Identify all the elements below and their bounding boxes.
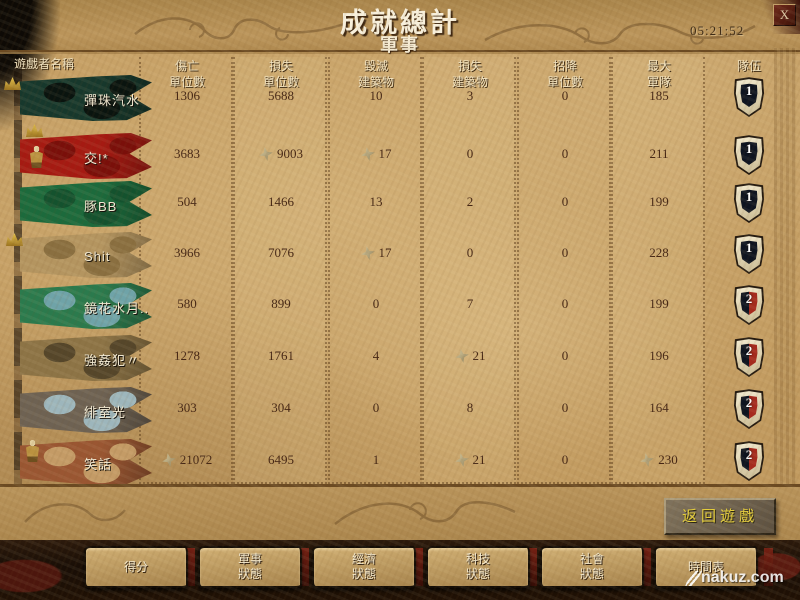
team-shield: 2 bbox=[733, 336, 765, 377]
player-row: 鏡花水月.. 580 899 0 7 0 199 2 bbox=[0, 281, 800, 333]
best-value-star-icon bbox=[359, 245, 376, 262]
stat-cell: 8 bbox=[423, 399, 517, 417]
stat-cell: 3 bbox=[423, 87, 517, 105]
scroll-ornament bbox=[330, 490, 520, 538]
stat-cell: 5688 bbox=[234, 87, 328, 105]
team-number: 2 bbox=[733, 343, 765, 359]
player-name: 彈珠汽水 bbox=[84, 73, 140, 125]
watermark-logo-icon bbox=[685, 571, 701, 586]
stat-cell: 199 bbox=[612, 193, 706, 211]
player-row: 笑話 21072 6495 1 21 0 230 2 bbox=[0, 437, 800, 489]
watermark: nakuz.com bbox=[688, 569, 784, 587]
player-column-header: 遊戲者名稱 bbox=[14, 55, 74, 72]
stat-cell: 13 bbox=[329, 193, 423, 211]
team-number: 1 bbox=[733, 189, 765, 205]
stat-cell: 17 bbox=[329, 244, 423, 262]
best-value-star-icon bbox=[359, 146, 376, 163]
team-number: 2 bbox=[733, 395, 765, 411]
stat-cell: 1 bbox=[329, 451, 423, 469]
stat-cell: 303 bbox=[140, 399, 234, 417]
stat-cell: 10 bbox=[329, 87, 423, 105]
stat-cell: 1306 bbox=[140, 87, 234, 105]
player-name: 交!* bbox=[84, 131, 109, 183]
team-number: 2 bbox=[733, 291, 765, 307]
stat-cell: 3966 bbox=[140, 244, 234, 262]
player-row: 強姦犯〃 1278 1761 4 21 0 196 2 bbox=[0, 333, 800, 385]
stat-cell: 4 bbox=[329, 347, 423, 365]
stat-cell: 9003 bbox=[234, 145, 328, 163]
player-row: 彈珠汽水 1306 5688 10 3 0 185 1 bbox=[0, 73, 800, 125]
stat-cell: 230 bbox=[612, 451, 706, 469]
stat-cell: 0 bbox=[518, 295, 612, 313]
stat-cell: 185 bbox=[612, 87, 706, 105]
best-value-star-icon bbox=[160, 452, 177, 469]
best-value-star-icon bbox=[453, 348, 470, 365]
player-row: 緋室光 303 304 0 8 0 164 2 bbox=[0, 385, 800, 437]
stat-cell: 196 bbox=[612, 347, 706, 365]
team-shield: 1 bbox=[733, 182, 765, 223]
team-shield: 1 bbox=[733, 76, 765, 117]
team-number: 1 bbox=[733, 141, 765, 157]
tab-military-status[interactable]: 軍事狀態 bbox=[198, 546, 302, 588]
team-shield: 1 bbox=[733, 134, 765, 175]
close-button[interactable]: X bbox=[773, 4, 796, 26]
team-shield: 2 bbox=[733, 388, 765, 429]
stat-cell: 504 bbox=[140, 193, 234, 211]
stat-cell: 0 bbox=[518, 87, 612, 105]
stat-cell: 164 bbox=[612, 399, 706, 417]
stat-cell: 0 bbox=[518, 244, 612, 262]
stat-cell: 211 bbox=[612, 145, 706, 163]
tab-technology-status[interactable]: 科技狀態 bbox=[426, 546, 530, 588]
stat-cell: 1466 bbox=[234, 193, 328, 211]
stat-cell: 6495 bbox=[234, 451, 328, 469]
team-number: 1 bbox=[733, 240, 765, 256]
stat-cell: 199 bbox=[612, 295, 706, 313]
stat-cell: 0 bbox=[329, 295, 423, 313]
watermark-text: nakuz.com bbox=[701, 569, 784, 587]
stat-cell: 3683 bbox=[140, 145, 234, 163]
tab-society-status[interactable]: 社會狀態 bbox=[540, 546, 644, 588]
scroll-ornament bbox=[20, 492, 130, 536]
team-column-header: 隊伍 bbox=[720, 57, 778, 74]
elapsed-time: 05:21:52 bbox=[690, 23, 744, 39]
stat-cell: 0 bbox=[423, 244, 517, 262]
team-shield: 2 bbox=[733, 284, 765, 325]
team-shield: 1 bbox=[733, 233, 765, 274]
stat-cell: 21072 bbox=[140, 451, 234, 469]
page-subtitle: 軍事 bbox=[0, 31, 800, 57]
player-name: 緋室光 bbox=[84, 385, 126, 437]
stat-cell: 2 bbox=[423, 193, 517, 211]
stat-cell: 0 bbox=[423, 145, 517, 163]
player-row: 豚BB 504 1466 13 2 0 199 1 bbox=[0, 179, 800, 231]
stat-cell: 7 bbox=[423, 295, 517, 313]
best-value-star-icon bbox=[258, 146, 275, 163]
stat-cell: 0 bbox=[518, 347, 612, 365]
stat-cell: 0 bbox=[518, 193, 612, 211]
team-shield: 2 bbox=[733, 440, 765, 481]
player-name: 豚BB bbox=[84, 179, 117, 231]
player-row: Shit 3966 7076 17 0 0 228 1 bbox=[0, 230, 800, 282]
stat-cell: 21 bbox=[423, 347, 517, 365]
return-to-game-button[interactable]: 返回遊戲 bbox=[664, 498, 776, 535]
tab-score[interactable]: 得分 bbox=[84, 546, 188, 588]
player-name: Shit bbox=[84, 230, 110, 282]
stat-cell: 228 bbox=[612, 244, 706, 262]
stat-cell: 580 bbox=[140, 295, 234, 313]
best-value-star-icon bbox=[639, 452, 656, 469]
stat-cell: 17 bbox=[329, 145, 423, 163]
tab-economy-status[interactable]: 經濟狀態 bbox=[312, 546, 416, 588]
achievements-screen: 成就總計 軍事 05:21:52 X 遊戲者名稱 隊伍 傷亡單位數 損失單位數 … bbox=[0, 0, 800, 600]
stat-cell: 7076 bbox=[234, 244, 328, 262]
stat-cell: 0 bbox=[518, 451, 612, 469]
stat-cell: 0 bbox=[518, 145, 612, 163]
stat-cell: 304 bbox=[234, 399, 328, 417]
best-value-star-icon bbox=[453, 452, 470, 469]
stat-cell: 0 bbox=[329, 399, 423, 417]
player-row: 交!* 3683 9003 17 0 0 211 1 bbox=[0, 131, 800, 183]
player-name: 笑話 bbox=[84, 437, 112, 489]
team-number: 2 bbox=[733, 447, 765, 463]
team-number: 1 bbox=[733, 83, 765, 99]
stat-cell: 899 bbox=[234, 295, 328, 313]
stat-cell: 1761 bbox=[234, 347, 328, 365]
player-name: 強姦犯〃 bbox=[84, 333, 140, 385]
stat-cell: 0 bbox=[518, 399, 612, 417]
stat-cell: 1278 bbox=[140, 347, 234, 365]
stat-cell: 21 bbox=[423, 451, 517, 469]
